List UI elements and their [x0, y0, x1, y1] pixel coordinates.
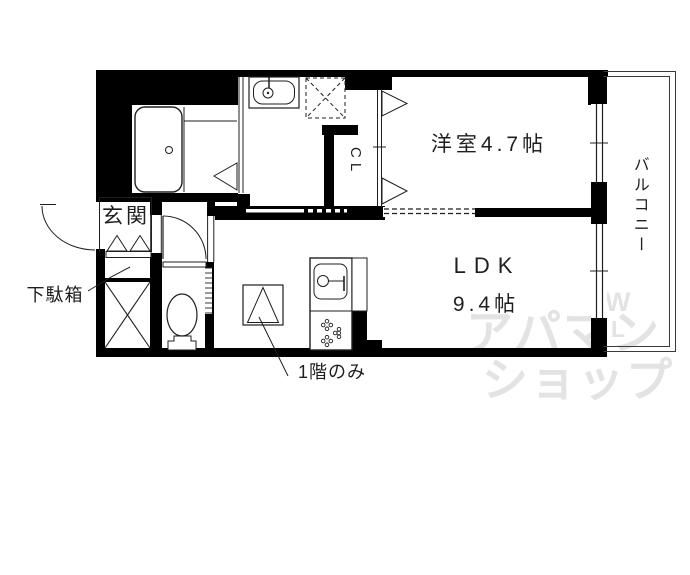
first-floor-note-label: 1階のみ — [298, 363, 366, 382]
wall-sliver — [246, 209, 299, 213]
window-ldk — [590, 224, 608, 318]
window-western-room — [590, 104, 608, 182]
bathtub-icon — [135, 107, 182, 192]
watermark-line2: ショップ — [482, 354, 674, 406]
closet-label: CL — [347, 147, 363, 176]
ldk-size-label: 9.4帖 — [453, 294, 519, 316]
toilet-icon — [167, 294, 197, 350]
floor-plan-drawing: アパマン ショップ W L — [0, 0, 690, 575]
toilet-threshold — [163, 262, 206, 267]
washbasin-icon — [249, 77, 299, 108]
ldk-label: LDK — [454, 254, 521, 277]
watermark-l-mark: L — [611, 316, 625, 342]
western-room-label: 洋室4.7帖 — [431, 134, 547, 156]
watermark-w-mark: W — [605, 287, 631, 317]
shoe-cabinet-label: 下駄箱 — [27, 286, 84, 305]
floor-plan-canvas: アパマン ショップ W L — [0, 0, 690, 575]
entrance-label: 玄関 — [102, 206, 150, 228]
balcony-label: バルコニー — [630, 156, 647, 256]
sliding-track-marks — [205, 268, 212, 314]
